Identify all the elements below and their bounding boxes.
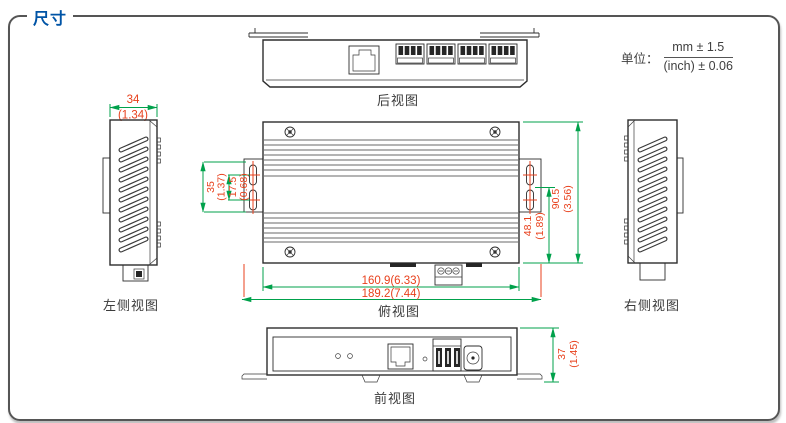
screw-icon (490, 247, 500, 257)
dim-90-5-mm: 90.5 (550, 189, 562, 210)
front-feet (362, 375, 482, 382)
dim-160-9: 160.9(6.33) (362, 275, 421, 287)
dim-ear-height: 35 (1.37) 17.5 (0.68) (203, 162, 250, 212)
left-view-vent-slots (121, 139, 146, 250)
dim-48-1-inch: (1.89) (534, 212, 546, 239)
rear-right-mount-tab (480, 28, 539, 37)
dim-37-mm: 37 (556, 348, 568, 360)
front-led-indicators (336, 354, 353, 359)
front-power-terminal (433, 339, 461, 371)
front-panel (273, 337, 511, 371)
screw-icon (285, 247, 295, 257)
corner-screws (285, 127, 500, 257)
right-mounting-ear (519, 159, 541, 214)
front-reset-hole (423, 357, 427, 361)
dim-depths: 48.1 (1.89) 90.5 (3.56) (522, 122, 583, 263)
dimension-drawing-page: 尺寸 单位： mm ± 1.5 (inch) ± 0.06 (0, 0, 786, 423)
dim-189-2: 189.2(7.44) (362, 288, 421, 300)
left-side-view-label: 左侧视图 (103, 298, 159, 313)
right-view-din-clip (677, 158, 683, 213)
right-view-bottom-connector (640, 263, 665, 280)
dim-17-5-inch: (0.68) (238, 173, 250, 200)
power-terminal-3pin (435, 265, 462, 285)
top-view-ribs-lower (264, 213, 518, 242)
screw-icon (285, 127, 295, 137)
screw-icon (490, 127, 500, 137)
dim-widths: 160.9(6.33) 189.2(7.44) (242, 264, 541, 300)
dim-34-mm: 34 (127, 94, 140, 106)
rear-terminal-blocks (396, 44, 517, 64)
technical-drawing: 后视图 34 (1.34) 左侧视图 (0, 0, 786, 423)
left-view-bottom-connector (123, 265, 148, 281)
right-view-vent-slots (640, 139, 665, 250)
front-dc-jack (464, 346, 482, 370)
front-view-drawing: 37 (1.45) 前视图 (242, 328, 580, 406)
right-side-view-label: 右侧视图 (624, 298, 680, 313)
left-view-din-clip (103, 158, 110, 213)
rear-left-mount-tab (249, 28, 308, 37)
rear-rj45-port (349, 46, 379, 74)
rear-view-drawing: 后视图 (249, 28, 539, 108)
top-view-drawing: 35 (1.37) 17.5 (0.68) 160.9(6.33) 189.2(… (203, 122, 583, 319)
top-view-ribs-upper (264, 140, 518, 176)
top-view-label: 俯视图 (378, 304, 420, 319)
dim-35-inch: (1.37) (216, 173, 228, 200)
right-side-view-drawing: 右侧视图 (624, 120, 683, 313)
right-ear-centerlines (523, 161, 537, 214)
front-view-label: 前视图 (374, 391, 416, 406)
rear-view-label: 后视图 (377, 93, 419, 108)
dim-37-inch: (1.45) (568, 340, 580, 367)
front-body (267, 328, 517, 375)
dim-48-1-mm: 48.1 (522, 216, 534, 237)
left-side-view-drawing: 34 (1.34) 左侧视图 (103, 94, 161, 313)
dim-90-5-inch: (3.56) (562, 185, 574, 212)
right-view-body (628, 120, 677, 263)
front-rj45-port (388, 344, 413, 369)
